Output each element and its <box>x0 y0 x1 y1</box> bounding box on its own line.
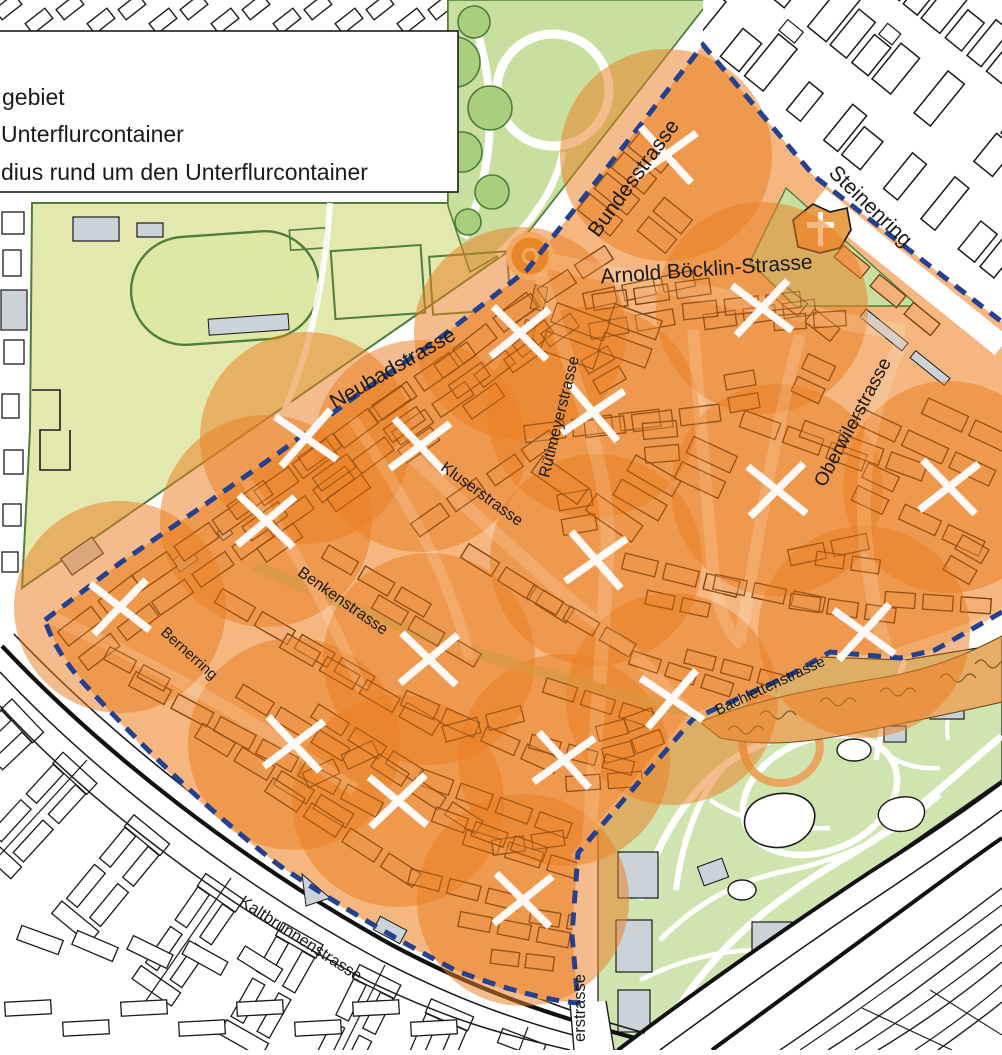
svg-text:dius rund um den Unterflurcont: dius rund um den Unterflurcontainer <box>1 159 368 185</box>
svg-text:erstrasse: erstrasse <box>571 974 589 1042</box>
svg-text:Unterflurcontainer: Unterflurcontainer <box>1 121 184 147</box>
svg-text:gebiet: gebiet <box>2 84 65 110</box>
